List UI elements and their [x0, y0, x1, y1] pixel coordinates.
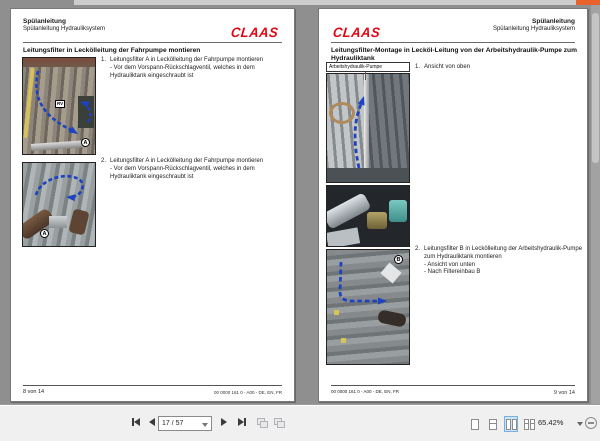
first-page-button[interactable] [132, 418, 140, 426]
document-number: 00 0000 161 0 - A00 - DE, EN, FR [214, 390, 282, 395]
header-title: Spülanleitung [493, 18, 575, 26]
figure-photo-top-view [326, 73, 410, 183]
step-number: 1. [101, 57, 110, 65]
claas-logo: CLAAS [230, 25, 279, 41]
instruction-step-2: 2. Leitungsfilter B in Leckölleitung der… [415, 246, 583, 277]
previous-page-icon [149, 418, 155, 426]
header-subtitle: Spülanleitung Hydrauliksystem [23, 26, 105, 34]
step-subtext: - Vor dem Vorspann-Rückschlagventil, wel… [110, 166, 283, 182]
two-page-continuous-icon [524, 419, 535, 430]
next-view-icon [277, 421, 285, 428]
step-subtext: - Nach Filtereinbau B [424, 269, 583, 277]
page-number-input[interactable] [162, 417, 201, 430]
blue-arrow-overlay [327, 74, 410, 183]
last-page-button[interactable] [238, 418, 246, 426]
two-page-continuous-icon-right [530, 419, 535, 430]
page-header: Spülanleitung Spülanleitung Hydrauliksys… [493, 18, 575, 34]
figure-photo-bottom-view: B [326, 249, 410, 365]
next-page-button[interactable] [221, 418, 227, 426]
marker-b: B [394, 255, 403, 264]
two-page-view-button[interactable] [504, 416, 518, 432]
page-number-field[interactable] [158, 416, 212, 431]
continuous-page-icon [489, 419, 497, 430]
step-text: Leitungsfilter A in Leckölleitung der Fa… [110, 158, 263, 166]
first-page-icon [134, 418, 140, 426]
step-text: Leitungsfilter B in Leckölleitung der Ar… [424, 246, 583, 262]
marker-a: A [40, 229, 49, 238]
step-number: 2. [415, 246, 424, 262]
single-page-view-button[interactable] [468, 416, 482, 432]
previous-page-button[interactable] [149, 418, 155, 426]
step-number: 1. [415, 64, 424, 72]
zoom-out-button[interactable] [585, 417, 597, 429]
scrollbar-thumb[interactable] [592, 13, 599, 163]
silver-filter-cartridge [326, 192, 372, 229]
bottom-toolbar: 65.42% [0, 404, 600, 441]
blue-arrow-overlay [327, 250, 410, 365]
header-divider [331, 42, 575, 43]
document-number: 00 0000 161 0 - A00 - DE, EN, FR [331, 389, 399, 394]
zoom-dropdown-caret-icon[interactable] [577, 422, 583, 426]
footer-divider [331, 385, 575, 386]
background-window-strip [74, 0, 576, 5]
document-page-right: CLAAS Spülanleitung Spülanleitung Hydrau… [318, 8, 588, 402]
instruction-step-1: 1. Leitungsfilter A in Leckölleitung der… [101, 57, 283, 80]
vertical-scrollbar[interactable] [591, 5, 600, 404]
instruction-step-1: 1. Ansicht von oben [415, 64, 580, 72]
two-page-icon [506, 419, 517, 430]
two-page-continuous-view-button[interactable] [522, 416, 536, 432]
step-text: Leitungsfilter A in Leckölleitung der Fa… [110, 57, 263, 65]
two-page-icon-right [512, 419, 517, 430]
figure-photo-pump-leak-line-2: A [22, 162, 96, 247]
header-subtitle: Spülanleitung Hydrauliksystem [493, 26, 575, 34]
step-subtext: - Ansicht von unten [424, 262, 583, 270]
previous-view-icon [260, 421, 268, 428]
previous-view-button[interactable] [257, 418, 269, 428]
light-floor [326, 227, 360, 247]
callout-leader-line [365, 72, 366, 80]
single-page-icon [471, 419, 479, 430]
callout-label: Arbeitshydraulik-Pumpe [326, 62, 410, 72]
blue-arrow-overlay [23, 163, 96, 247]
pdf-viewer-window: Spülanleitung Spülanleitung Hydrauliksys… [0, 0, 600, 441]
footer-divider [23, 385, 282, 386]
section-title: Leitungsfilter in Leckölleitung der Fahr… [23, 47, 282, 55]
step-text: Ansicht von oben [424, 64, 470, 72]
figure-photo-filter-closeup [326, 185, 410, 247]
document-page-left: Spülanleitung Spülanleitung Hydrauliksys… [10, 8, 295, 402]
marker-a: A [81, 138, 90, 147]
header-title: Spülanleitung [23, 18, 105, 26]
page-number: 9 von 14 [554, 390, 575, 396]
brass-hex-fitting [367, 212, 387, 229]
section-title: Leitungsfilter-Montage in Lecköl-Leitung… [331, 47, 579, 63]
continuous-view-button[interactable] [486, 416, 500, 432]
two-page-icon-left [506, 419, 511, 430]
minus-icon [588, 422, 594, 424]
page-dropdown-caret-icon[interactable] [202, 423, 208, 427]
zoom-level-value[interactable]: 65.42% [538, 418, 563, 427]
step-number: 2. [101, 158, 110, 166]
two-page-continuous-icon-left [524, 419, 529, 430]
next-page-icon [221, 418, 227, 426]
instruction-step-2: 2. Leitungsfilter A in Leckölleitung der… [101, 158, 283, 181]
last-page-icon [244, 418, 246, 426]
figure-photo-pump-leak-line-1: RV A [22, 57, 96, 155]
page-header: Spülanleitung Spülanleitung Hydrauliksys… [23, 18, 105, 34]
header-divider [23, 42, 282, 43]
next-view-button[interactable] [274, 418, 286, 428]
teal-cap [389, 200, 407, 222]
label-rv: RV [55, 100, 65, 108]
claas-logo: CLAAS [332, 25, 381, 41]
step-subtext: - Vor dem Vorspann-Rückschlagventil, wel… [110, 65, 283, 81]
page-number: 8 von 14 [23, 389, 44, 395]
